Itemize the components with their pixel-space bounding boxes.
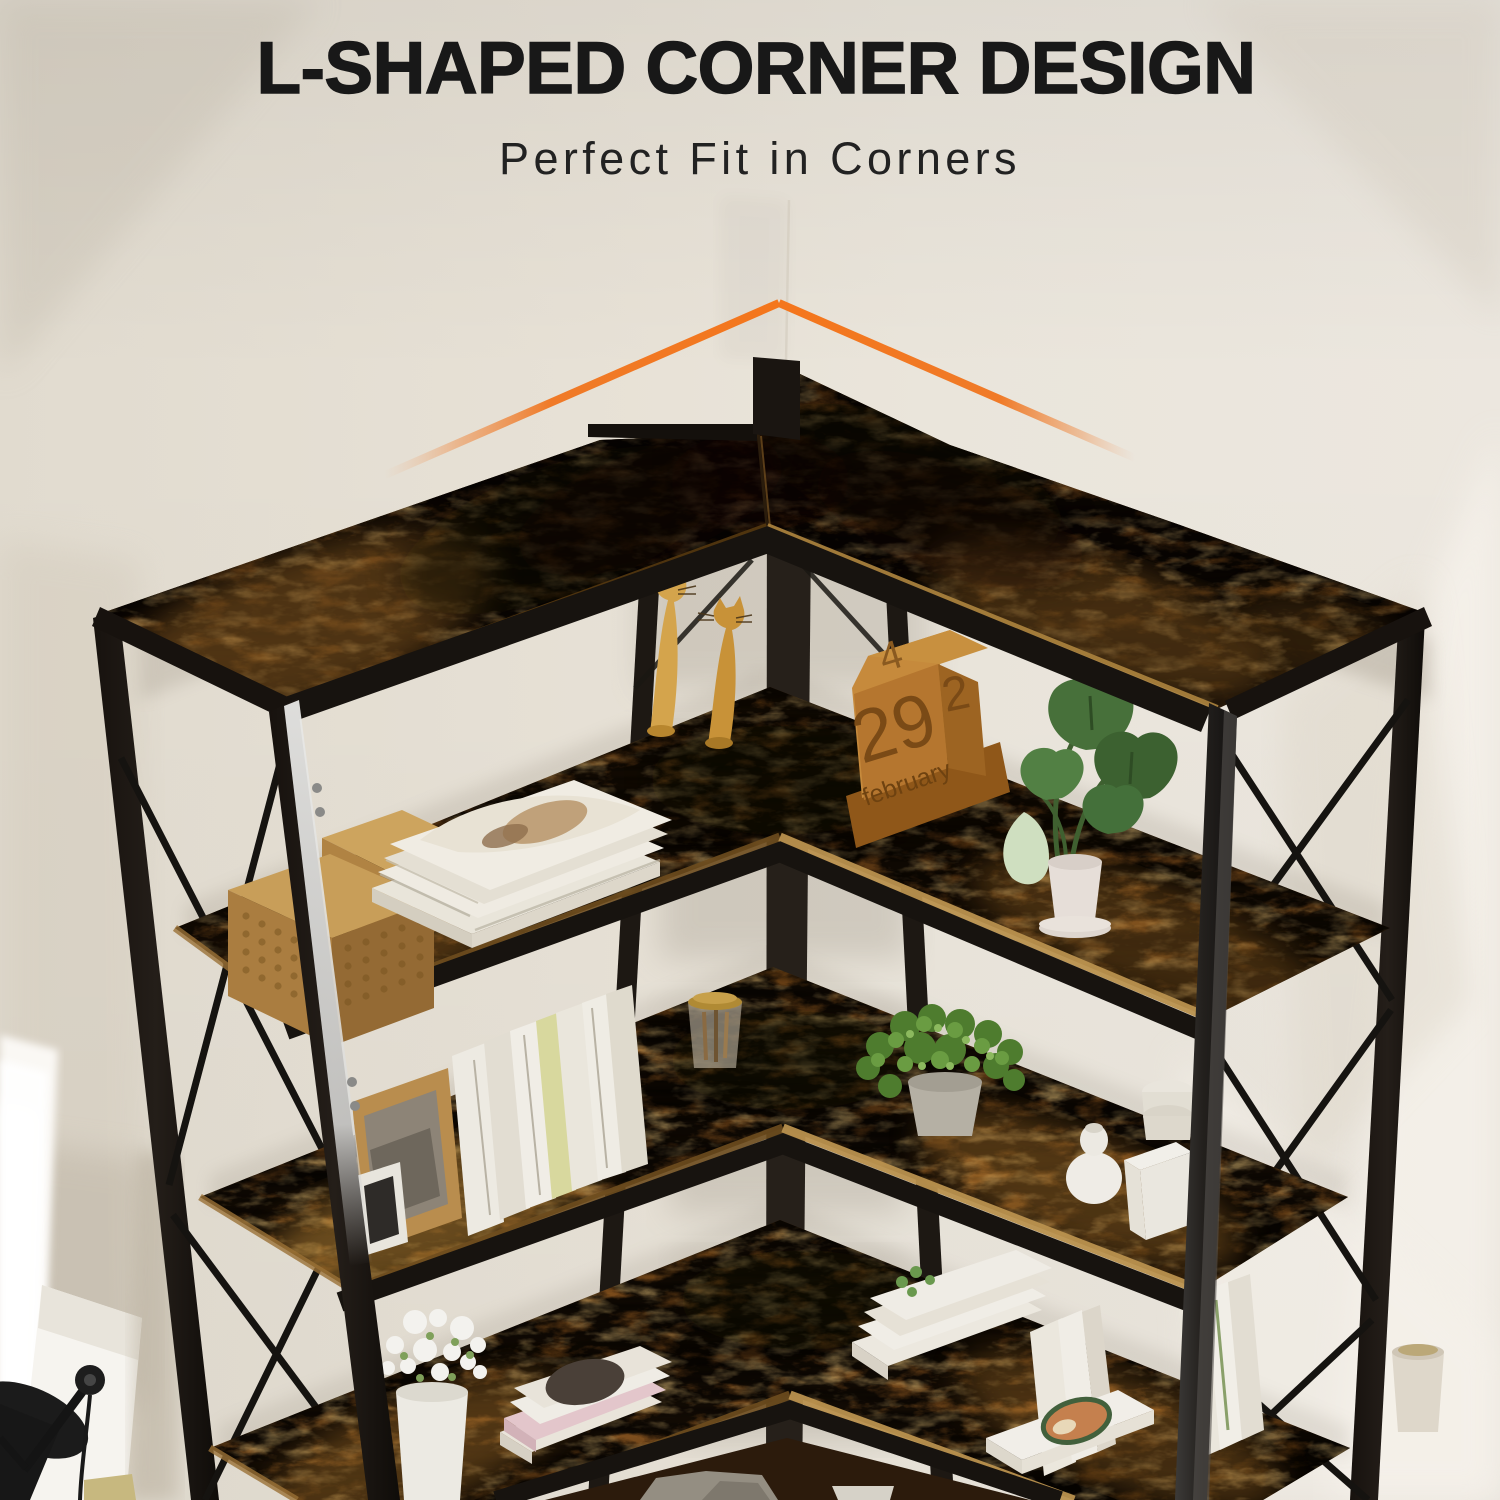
svg-text:L-SHAPED CORNER DESIGN: L-SHAPED CORNER DESIGN	[257, 28, 1256, 109]
svg-text:Perfect Fit in Corners: Perfect Fit in Corners	[499, 133, 1021, 184]
